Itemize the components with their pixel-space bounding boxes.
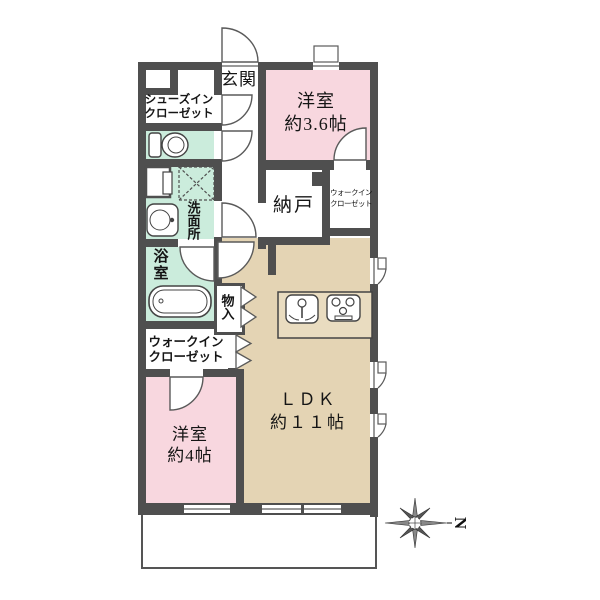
vanity-sink-icon <box>147 204 178 236</box>
window-flag-top <box>314 46 338 62</box>
shoes-in-closet-label: シューズイン クローゼット <box>140 92 218 122</box>
walkin-closet-left-label: ウォークイン クローゼット <box>142 334 230 366</box>
genkan-label: 玄関 <box>218 66 260 88</box>
door-arc-toilet <box>222 131 252 161</box>
washroom-label: 洗面所 <box>184 197 202 243</box>
bifold-wicleft-2 <box>236 352 251 369</box>
bifold-monoire-2 <box>241 307 256 327</box>
monoire-label: 物入 <box>218 289 236 325</box>
window-flag-arc-3 <box>378 424 386 437</box>
door-arc-bathroom <box>180 247 214 281</box>
bifold-wicleft-1 <box>236 335 251 352</box>
door-arc-bed4 <box>170 377 203 410</box>
bedroom-36-label: 洋室 約3.6帖 <box>262 90 370 136</box>
washroom-cabinet <box>146 167 172 197</box>
toilet-icon <box>149 133 188 157</box>
door-arc-ldk-entry <box>218 242 254 278</box>
window-flag-arc-1 <box>378 269 386 284</box>
ldk-label: ＬＤＫ 約１１帖 <box>256 388 360 434</box>
compass-icon: N <box>385 498 470 548</box>
bedroom-4-label: 洋室 約4帖 <box>142 424 238 466</box>
window-flag-right-3 <box>378 414 386 424</box>
window-flag-right-1 <box>378 258 386 269</box>
door-arc-sic <box>222 95 252 125</box>
kitchen-counter <box>278 292 372 338</box>
compass-n-label: N <box>451 517 470 530</box>
door-arc-washroom <box>222 203 256 237</box>
bifold-monoire-1 <box>241 287 256 307</box>
nando-label: 納戸 <box>262 191 326 215</box>
bathtub-icon <box>149 286 211 317</box>
walkin-closet-right-label: ウォークイン クローゼット <box>330 186 372 210</box>
bathroom-label: 浴室 <box>150 246 170 284</box>
window-flag-right-2 <box>378 362 386 373</box>
washer-pan-icon <box>179 167 214 200</box>
door-arc-entrance <box>222 28 258 62</box>
window-flag-arc-2 <box>378 373 386 388</box>
floorplan-canvas: N 玄関 シューズイン クローゼット 洗面所 浴室 物入 ウォークイン クローゼ… <box>0 0 600 600</box>
